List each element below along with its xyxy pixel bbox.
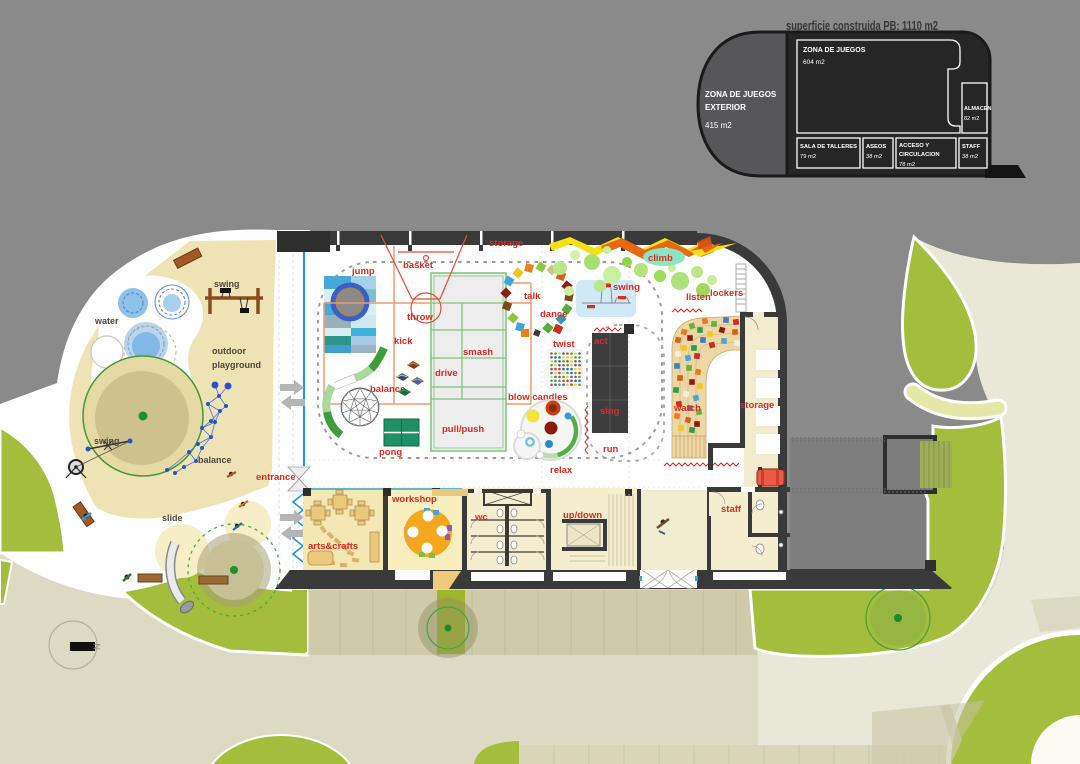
svg-text:SALA DE TALLERES: SALA DE TALLERES — [800, 144, 857, 150]
svg-text:balance: balance — [198, 455, 232, 465]
svg-text:run: run — [603, 444, 619, 455]
svg-text:arts&crafts: arts&crafts — [308, 541, 358, 552]
svg-text:basket: basket — [403, 260, 434, 271]
svg-text:sing: sing — [600, 406, 620, 417]
svg-text:act: act — [594, 336, 609, 347]
svg-text:water: water — [94, 316, 119, 326]
svg-text:talk: talk — [524, 291, 541, 302]
svg-text:jump: jump — [351, 266, 375, 277]
svg-text:dance: dance — [540, 309, 567, 320]
svg-text:ZONA DE JUEGOS: ZONA DE JUEGOS — [803, 47, 866, 54]
svg-text:ZONA DE JUEGOS: ZONA DE JUEGOS — [705, 90, 777, 99]
svg-text:listen: listen — [686, 292, 711, 303]
svg-text:twist: twist — [553, 339, 575, 350]
svg-text:slide: slide — [162, 513, 183, 523]
svg-text:kick: kick — [394, 336, 413, 347]
svg-text:78 m2: 78 m2 — [899, 162, 915, 168]
svg-text:relax: relax — [550, 465, 573, 476]
svg-text:pull/push: pull/push — [442, 424, 484, 435]
svg-text:STAFF: STAFF — [962, 144, 981, 150]
svg-text:ASEOS: ASEOS — [866, 144, 886, 150]
svg-text:storage: storage — [489, 238, 523, 249]
svg-text:swing: swing — [613, 282, 640, 293]
svg-text:38 m2: 38 m2 — [962, 154, 978, 160]
svg-text:up/down: up/down — [563, 510, 602, 521]
svg-text:CIRCULACION: CIRCULACION — [899, 152, 940, 158]
svg-text:79 m2: 79 m2 — [800, 154, 816, 160]
svg-text:604 m2: 604 m2 — [803, 59, 825, 66]
svg-text:drive: drive — [435, 368, 458, 379]
svg-text:N: N — [92, 644, 102, 651]
svg-text:smash: smash — [463, 347, 493, 358]
svg-text:pong: pong — [379, 447, 402, 458]
svg-text:415 m2: 415 m2 — [705, 121, 732, 130]
svg-text:outdoor: outdoor — [212, 346, 246, 356]
svg-text:ACCESO Y: ACCESO Y — [899, 143, 929, 149]
svg-text:storage: storage — [740, 400, 774, 411]
svg-text:throw: throw — [407, 312, 433, 323]
svg-text:playground: playground — [212, 360, 261, 370]
svg-text:staff: staff — [721, 504, 742, 515]
svg-text:workshop: workshop — [391, 494, 437, 505]
svg-text:balance: balance — [370, 384, 405, 395]
svg-text:climb: climb — [648, 253, 673, 264]
svg-text:38 m2: 38 m2 — [866, 154, 882, 160]
svg-text:entrance: entrance — [256, 472, 296, 483]
svg-text:82 m2: 82 m2 — [964, 116, 979, 122]
svg-text:lockers: lockers — [710, 288, 743, 299]
svg-text:EXTERIOR: EXTERIOR — [705, 103, 746, 112]
svg-text:swing: swing — [94, 436, 120, 446]
svg-text:watch: watch — [673, 403, 701, 414]
svg-text:wc: wc — [474, 512, 488, 523]
svg-text:swing: swing — [214, 279, 240, 289]
svg-text:ALMACEN: ALMACEN — [964, 106, 992, 112]
